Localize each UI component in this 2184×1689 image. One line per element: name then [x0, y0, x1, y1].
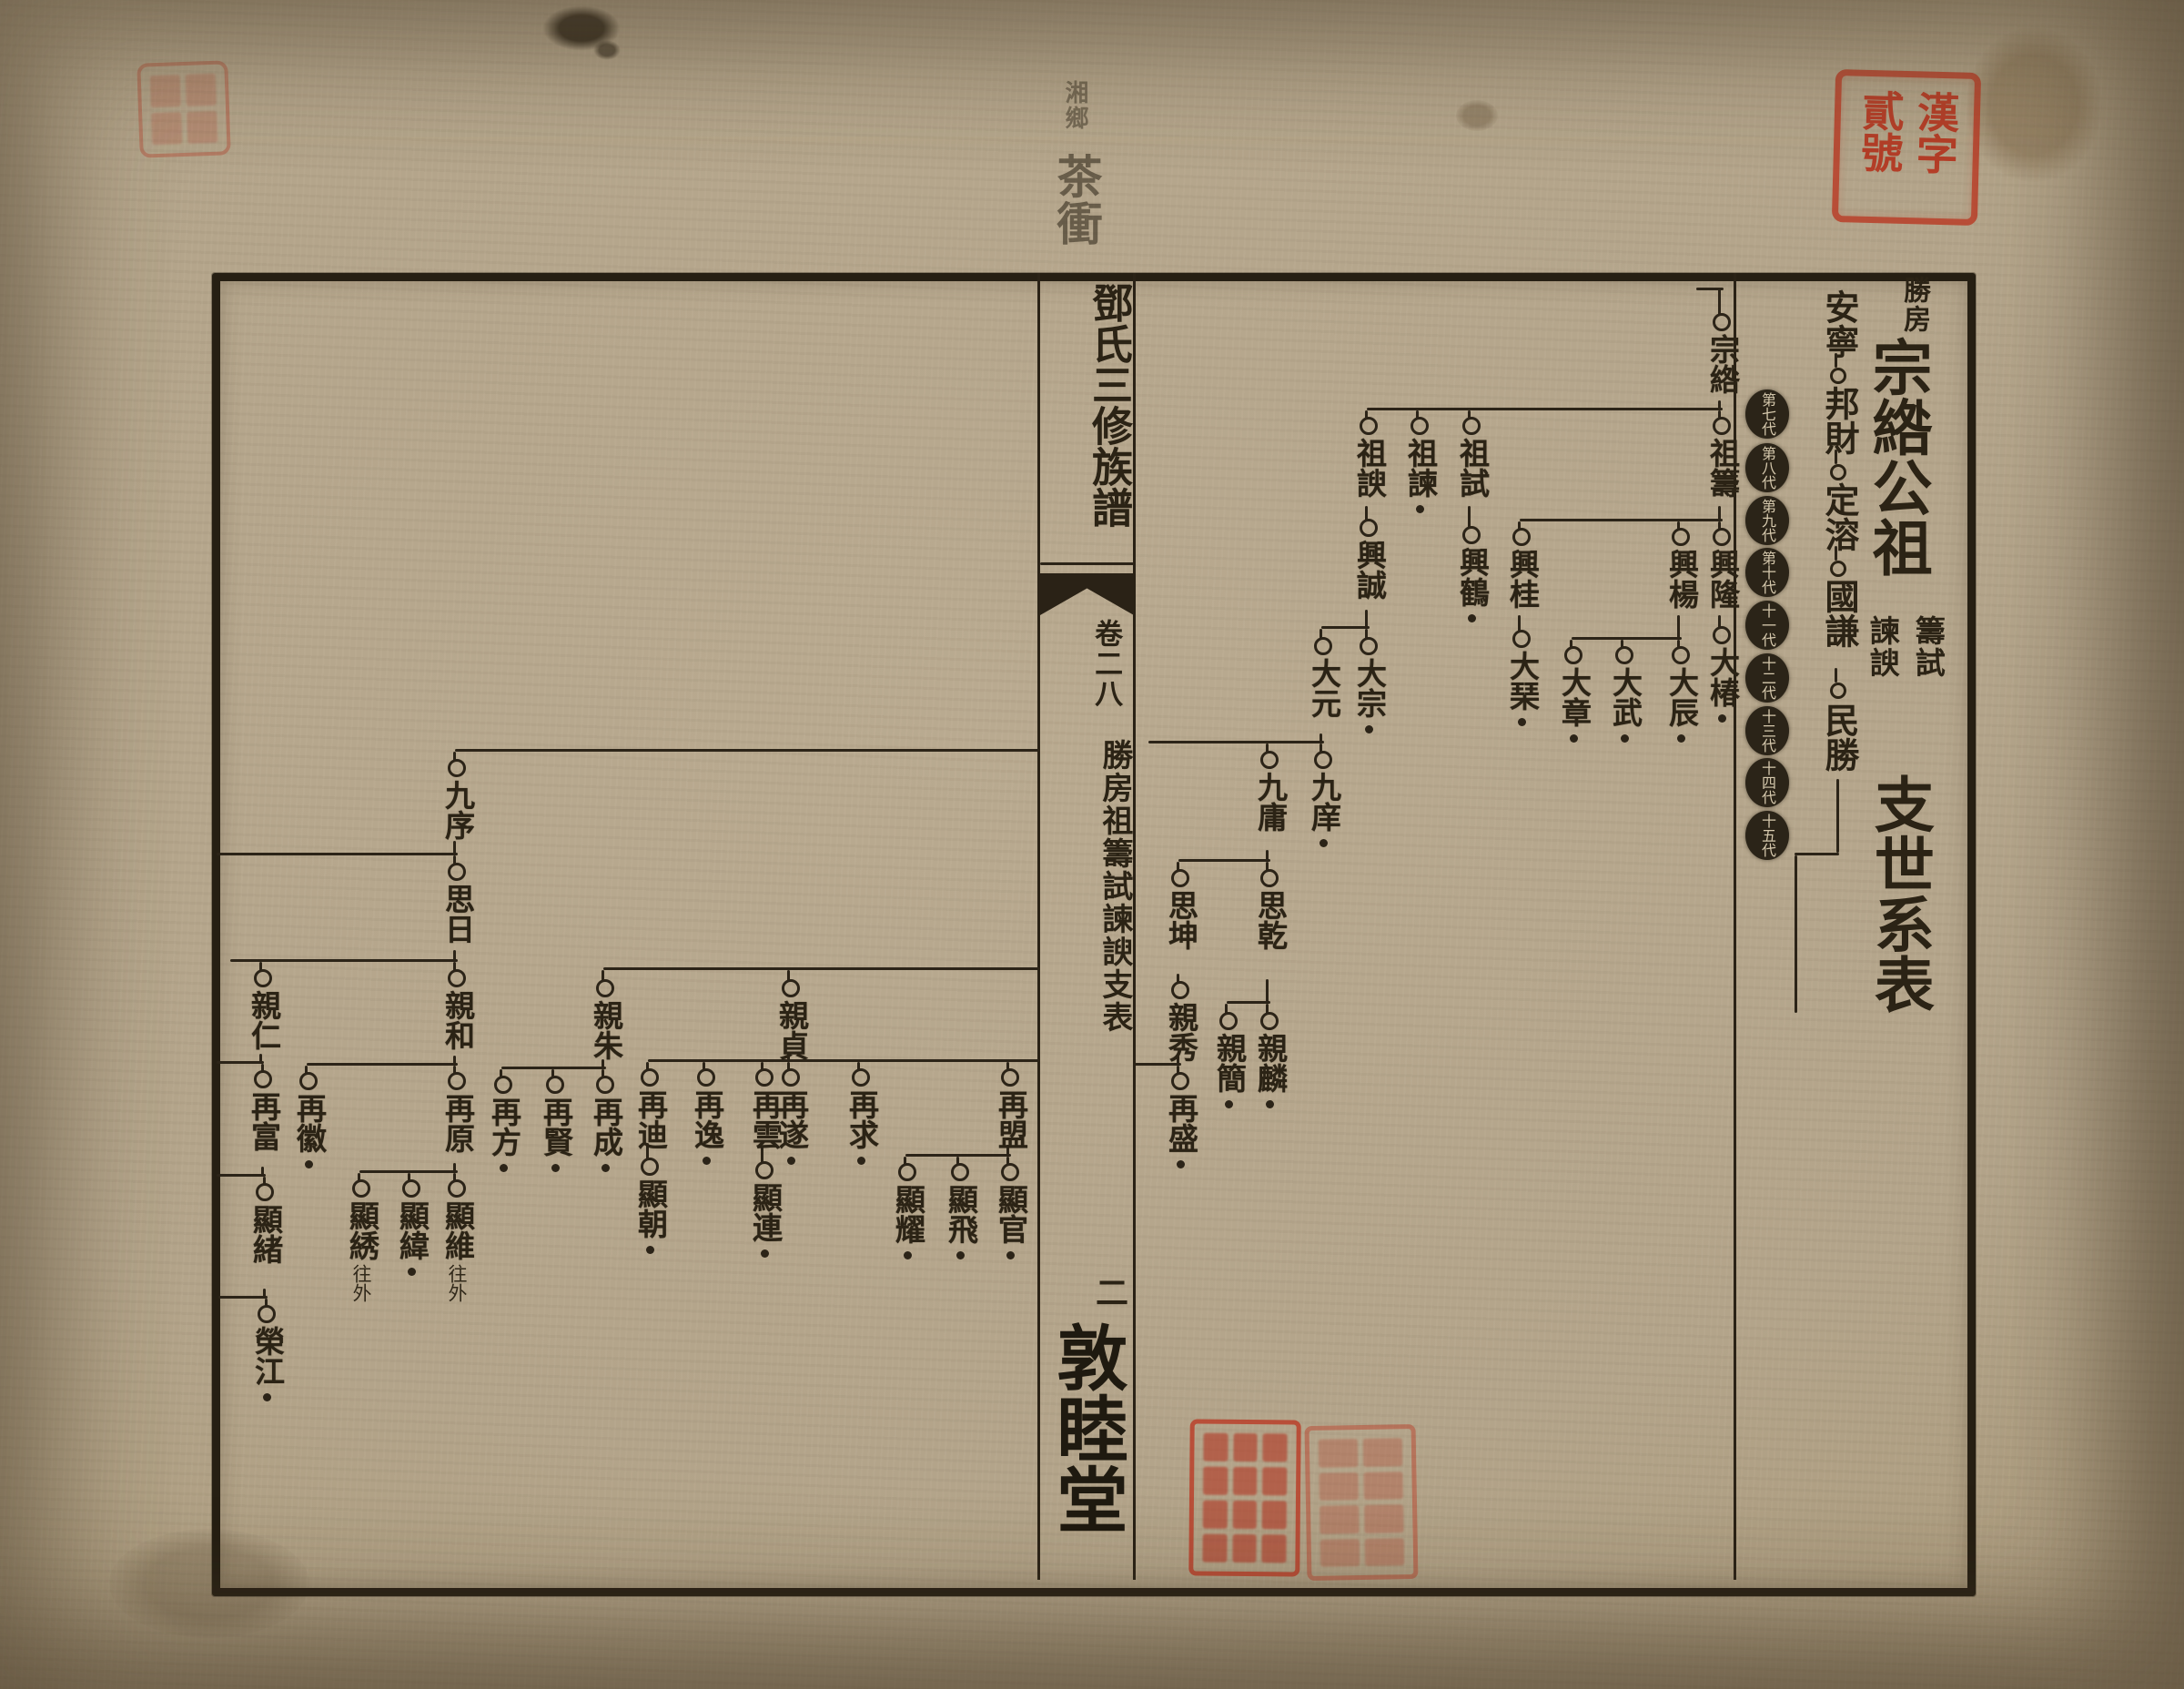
person-circle-icon [448, 759, 466, 777]
fold-place-small: 湘鄉 [1063, 80, 1087, 131]
person-circle-icon [1314, 637, 1332, 655]
line-end-dot [500, 1164, 508, 1172]
tree-connector-line [1677, 615, 1680, 639]
person-name: 再逸 [690, 1089, 723, 1149]
line-end-dot [956, 1251, 965, 1259]
tree-connector-line [1367, 408, 1723, 410]
tree-connector-line [1795, 853, 1839, 855]
generation-badge-label: 第八代 [1760, 446, 1774, 490]
tree-connector-line [217, 1174, 266, 1177]
branch-label: 勝房 [1900, 276, 1927, 334]
person-circle-icon [448, 969, 466, 987]
tree-node-九庠: 九庠 [1303, 751, 1343, 847]
person-circle-icon [254, 1070, 272, 1088]
tree-node-再富: 再富 [243, 1070, 283, 1151]
person-name: 大元 [1307, 658, 1340, 718]
page-title-rest: 支世系表 [1864, 774, 1935, 1014]
tree-node-親貞: 親貞 [771, 979, 811, 1060]
line-end-dot [1468, 614, 1476, 622]
fold-book-title: 鄧氏三修族譜 [1050, 282, 1128, 528]
tree-node-親仁: 親仁 [243, 969, 283, 1050]
line-end-dot [1621, 734, 1629, 743]
tree-connector-line [1795, 855, 1797, 1013]
person-name: 大章 [1557, 667, 1591, 727]
fold-volume-number: 卷二八 [1090, 619, 1121, 709]
chain-circle [1830, 683, 1846, 699]
tree-node-顯綉: 顯綉往外 [341, 1179, 381, 1302]
line-end-dot [263, 1393, 271, 1401]
person-name: 大辰 [1664, 667, 1698, 727]
person-circle-icon [898, 1163, 916, 1181]
tree-node-親秀: 親秀 [1160, 981, 1200, 1062]
person-name: 祖諛 [1352, 438, 1386, 498]
fold-section-title: 勝房祖籌試諫諛支表 [1094, 739, 1135, 1034]
tree-connector-line [648, 1059, 1040, 1062]
tree-node-顯連: 顯連 [744, 1161, 784, 1258]
person-name: 顯緯 [395, 1200, 429, 1260]
tree-connector-line [455, 749, 1040, 752]
person-name: 興誠 [1352, 540, 1386, 600]
tree-node-顯飛: 顯飛 [940, 1163, 980, 1259]
tree-node-顯耀: 顯耀 [887, 1163, 927, 1259]
tree-node-大章: 大章 [1553, 646, 1593, 743]
person-circle-icon [1360, 519, 1378, 537]
tree-node-再成: 再成 [585, 1076, 625, 1172]
fold-page-number: 二 [1096, 1267, 1128, 1314]
tree-node-親麟: 親麟 [1249, 1012, 1289, 1108]
line-end-dot [551, 1164, 560, 1172]
person-circle-icon [1713, 313, 1731, 331]
person-circle-icon [755, 1161, 773, 1179]
ancestor-name: 邦財 [1818, 386, 1858, 455]
ancestor-name: 定溶 [1818, 482, 1858, 551]
line-end-dot [1177, 1160, 1185, 1168]
person-circle-icon [1672, 528, 1690, 546]
person-name: 九庸 [1253, 772, 1287, 832]
tree-node-親和: 親和 [437, 969, 477, 1050]
person-name: 大琹 [1505, 651, 1539, 711]
tree-connector-line [217, 1061, 264, 1064]
person-circle-icon [299, 1072, 318, 1090]
person-name: 興楊 [1664, 549, 1698, 609]
generation-badge: 第十代 [1745, 548, 1789, 597]
tree-connector-line [217, 853, 458, 855]
generation-badge: 十二代 [1745, 653, 1789, 703]
tree-connector-line [603, 967, 1040, 970]
chain-connector [1835, 450, 1837, 464]
line-end-dot [1266, 1100, 1274, 1108]
tree-node-再盟: 再盟 [990, 1068, 1030, 1149]
person-circle-icon [1512, 528, 1531, 546]
tree-connector-line [1135, 1063, 1181, 1066]
line-end-dot [408, 1268, 416, 1276]
person-name: 顯維 [440, 1200, 474, 1260]
line-end-dot [1225, 1100, 1233, 1108]
tree-connector-line [261, 1167, 264, 1176]
tree-connector-line [1266, 850, 1269, 861]
person-circle-icon [1713, 417, 1731, 435]
person-circle-icon [1713, 528, 1731, 546]
tree-connector-line [259, 1054, 262, 1063]
person-name: 再盟 [994, 1089, 1027, 1149]
chain-connector [1835, 668, 1837, 683]
tree-node-宗綹: 宗綹 [1702, 313, 1742, 394]
title-annotation-right: 籌試 [1911, 615, 1944, 679]
seal-text-right-column: 漢字 [1907, 90, 1962, 175]
person-name: 親貞 [774, 1000, 808, 1060]
generation-badge-label: 第九代 [1760, 499, 1774, 542]
person-name: 祖籌 [1705, 438, 1739, 498]
person-name: 顯官 [994, 1184, 1027, 1244]
tree-connector-line [263, 1289, 266, 1298]
person-name: 思乾 [1253, 890, 1287, 950]
line-end-dot [1518, 718, 1526, 726]
fishtail-rule [1040, 562, 1134, 565]
tree-connector-line [1178, 859, 1270, 862]
person-circle-icon [697, 1068, 715, 1087]
person-name: 思坤 [1164, 890, 1198, 950]
person-circle-icon [402, 1179, 420, 1198]
person-circle-icon [782, 1068, 800, 1087]
generation-badge: 十一代 [1745, 601, 1789, 650]
tree-node-大椿: 大椿 [1702, 626, 1742, 723]
generation-badge: 十四代 [1745, 758, 1789, 807]
person-circle-icon [1260, 751, 1279, 769]
person-circle-icon [1219, 1012, 1238, 1030]
person-circle-icon [1001, 1068, 1019, 1087]
chain-circle [1830, 464, 1846, 480]
tree-node-顯緯: 顯緯 [391, 1179, 431, 1276]
tree-connector-line [1836, 779, 1839, 853]
line-end-dot [602, 1164, 610, 1172]
person-circle-icon [1260, 1012, 1279, 1030]
chain-connector [1835, 353, 1837, 368]
person-name: 親和 [440, 990, 474, 1050]
tree-connector-line [230, 959, 458, 962]
person-circle-icon [1314, 751, 1332, 769]
chain-circle [1830, 368, 1846, 384]
person-circle-icon [1462, 526, 1481, 544]
person-circle-icon [448, 1072, 466, 1090]
tree-node-祖籌: 祖籌 [1702, 417, 1742, 498]
tree-connector-line [1718, 400, 1721, 410]
line-end-dot [1570, 734, 1578, 743]
person-name: 興鶴 [1455, 547, 1489, 607]
tree-node-興桂: 興桂 [1501, 528, 1542, 609]
line-end-dot [1416, 505, 1424, 513]
person-circle-icon [1564, 646, 1582, 664]
line-end-dot [1718, 714, 1726, 723]
tree-connector-line [453, 950, 456, 961]
person-name: 親朱 [589, 1000, 622, 1060]
person-name: 再方 [487, 1097, 521, 1157]
red-seal-top-right: 漢字 貳號 [1832, 69, 1981, 226]
tree-node-大元: 大元 [1303, 637, 1343, 718]
person-name: 再迪 [633, 1089, 667, 1149]
tree-connector-line [1718, 289, 1721, 315]
title-annotation-left: 諫諛 [1865, 615, 1898, 679]
tree-node-祖諫: 祖諫 [1400, 417, 1440, 513]
person-name: 顯朝 [633, 1178, 667, 1239]
person-name: 大宗 [1352, 658, 1386, 718]
person-circle-icon [1672, 646, 1690, 664]
generation-badge: 第七代 [1745, 389, 1789, 439]
person-circle-icon [448, 1179, 466, 1198]
tree-connector-line [1266, 979, 1269, 1003]
tree-connector-line [1148, 741, 1324, 743]
person-name: 顯耀 [891, 1184, 925, 1244]
person-name: 顯綉 [345, 1200, 379, 1260]
person-name: 親仁 [247, 990, 280, 1050]
person-name: 興隆 [1705, 549, 1739, 609]
generation-badge-label: 十二代 [1760, 656, 1774, 700]
tree-connector-line [218, 1296, 268, 1299]
red-seal-bottom-left [1188, 1419, 1300, 1576]
generation-badge: 第九代 [1745, 496, 1789, 545]
person-name: 再賢 [539, 1097, 572, 1157]
person-circle-icon [1360, 637, 1378, 655]
line-end-dot [1677, 734, 1685, 743]
line-end-dot [904, 1251, 912, 1259]
person-circle-icon [596, 1076, 614, 1094]
person-circle-icon [1410, 417, 1429, 435]
tree-connector-line [1520, 519, 1723, 521]
tree-node-大宗: 大宗 [1349, 637, 1389, 733]
chain-connector [1835, 546, 1837, 561]
tree-node-祖試: 祖試 [1451, 417, 1491, 498]
fold-column-left-border [1037, 273, 1040, 1580]
person-name: 九庠 [1307, 772, 1340, 832]
tree-node-再盛: 再盛 [1160, 1072, 1200, 1168]
line-end-dot [787, 1157, 795, 1165]
person-circle-icon [596, 979, 614, 997]
tree-node-九庸: 九庸 [1249, 751, 1289, 832]
tree-node-親簡: 親簡 [1208, 1012, 1249, 1108]
person-circle-icon [256, 1183, 274, 1201]
generation-badge-label: 十四代 [1760, 761, 1774, 804]
tree-node-興鶴: 興鶴 [1451, 526, 1491, 622]
fold-hall-name: 敦睦堂 [1048, 1321, 1124, 1534]
tree-node-再逸: 再逸 [686, 1068, 726, 1165]
tree-node-顯官: 顯官 [990, 1163, 1030, 1259]
tree-node-再方: 再方 [483, 1076, 523, 1172]
tree-connector-line [1572, 637, 1682, 640]
ancestor-name: 民勝 [1818, 703, 1858, 772]
line-end-dot [857, 1157, 865, 1165]
tree-connector-line [1718, 506, 1721, 521]
person-circle-icon [1171, 981, 1189, 999]
generation-badge-label: 第十代 [1760, 551, 1774, 594]
tree-node-祖諛: 祖諛 [1349, 417, 1389, 498]
generation-badge-label: 十五代 [1760, 814, 1774, 857]
tree-node-興隆: 興隆 [1702, 528, 1742, 609]
seal-text-left-column: 貳號 [1852, 88, 1906, 173]
person-name: 再原 [440, 1093, 474, 1153]
person-name: 再成 [589, 1097, 622, 1157]
line-end-dot [703, 1157, 711, 1165]
tree-node-興誠: 興誠 [1349, 519, 1389, 600]
person-circle-icon [641, 1158, 659, 1176]
person-circle-icon [641, 1068, 659, 1087]
tree-node-再徽: 再徽 [288, 1072, 329, 1168]
generation-badge-label: 十三代 [1760, 709, 1774, 753]
person-name: 宗綹 [1705, 334, 1739, 394]
person-circle-icon [494, 1076, 512, 1094]
tree-node-大武: 大武 [1604, 646, 1644, 743]
tree-connector-line [1321, 626, 1370, 629]
tree-node-大琹: 大琹 [1501, 630, 1542, 726]
red-seal-bottom-right [1305, 1424, 1419, 1581]
person-name: 興桂 [1505, 549, 1539, 609]
tree-node-思坤: 思坤 [1160, 869, 1200, 950]
person-name: 親簡 [1212, 1033, 1246, 1093]
tree-node-興楊: 興楊 [1661, 528, 1701, 609]
person-circle-icon [1001, 1163, 1019, 1181]
person-name: 再徽 [292, 1093, 326, 1153]
person-circle-icon [1260, 869, 1279, 887]
person-circle-icon [1171, 869, 1189, 887]
tree-node-親朱: 親朱 [585, 979, 625, 1060]
line-end-dot [1006, 1251, 1015, 1259]
generation-badge: 十五代 [1745, 811, 1789, 860]
person-name: 顯飛 [944, 1184, 977, 1244]
tree-node-再迪: 再迪 [630, 1068, 670, 1149]
tree-node-顯維: 顯維往外 [437, 1179, 477, 1302]
person-name: 再富 [247, 1091, 280, 1151]
person-name: 榮江 [250, 1326, 284, 1386]
tree-connector-line [1468, 506, 1471, 528]
line-end-dot [1319, 839, 1328, 847]
person-name: 大椿 [1705, 647, 1739, 707]
person-name: 親麟 [1253, 1033, 1287, 1093]
tree-connector-line [1227, 1001, 1270, 1004]
ancestor-name: 國謙 [1818, 579, 1858, 648]
person-note: 往外 [447, 1264, 467, 1302]
person-circle-icon [258, 1305, 276, 1323]
generation-badge-label: 十一代 [1760, 603, 1774, 647]
person-circle-icon [1462, 417, 1481, 435]
person-circle-icon [1171, 1072, 1189, 1090]
ancestor-name: 安寧 [1818, 289, 1858, 359]
person-note: 往外 [351, 1264, 371, 1302]
person-name: 親秀 [1164, 1002, 1198, 1062]
page-title: 宗綹公祖 [1864, 337, 1932, 577]
person-circle-icon [254, 969, 272, 987]
chain-circle [1830, 561, 1846, 577]
person-name: 顯緒 [248, 1204, 282, 1264]
tree-node-顯緒: 顯緒 [245, 1183, 285, 1264]
person-name: 祖試 [1455, 438, 1489, 498]
tree-node-大辰: 大辰 [1661, 646, 1701, 743]
person-name: 思日 [440, 884, 474, 944]
person-name: 再雲 [748, 1089, 782, 1149]
tree-node-再原: 再原 [437, 1072, 477, 1153]
person-circle-icon [1615, 646, 1633, 664]
line-end-dot [305, 1160, 313, 1168]
tree-connector-line [602, 1059, 604, 1068]
generation-badge-label: 第七代 [1760, 392, 1774, 436]
generation-badge: 第八代 [1745, 443, 1789, 492]
red-seal-top-left-faded [136, 60, 231, 157]
person-circle-icon [448, 863, 466, 881]
person-circle-icon [1512, 630, 1531, 648]
tree-connector-line [453, 841, 456, 855]
line-end-dot [646, 1246, 654, 1254]
person-circle-icon [352, 1179, 370, 1198]
tree-node-再賢: 再賢 [535, 1076, 575, 1172]
person-name: 再求 [844, 1089, 878, 1149]
tree-connector-line [307, 1063, 458, 1066]
line-end-dot [761, 1249, 769, 1258]
fold-place: 茶衝 [1052, 153, 1100, 248]
tree-connector-line [453, 1056, 456, 1065]
person-circle-icon [782, 979, 800, 997]
tree-node-榮江: 榮江 [247, 1305, 287, 1401]
person-circle-icon [546, 1076, 564, 1094]
tree-node-顯朝: 顯朝 [630, 1158, 670, 1254]
person-name: 大武 [1608, 667, 1642, 727]
line-end-dot [1365, 725, 1373, 733]
person-circle-icon [852, 1068, 870, 1087]
tree-node-再雲: 再雲 [744, 1068, 784, 1149]
person-circle-icon [1713, 626, 1731, 644]
person-name: 顯連 [748, 1182, 782, 1242]
person-circle-icon [951, 1163, 969, 1181]
tree-connector-line [453, 1163, 456, 1172]
tree-connector-line [1319, 733, 1322, 743]
tree-node-思乾: 思乾 [1249, 869, 1289, 950]
tree-node-再求: 再求 [841, 1068, 881, 1165]
person-circle-icon [1360, 417, 1378, 435]
generation-badge: 十三代 [1745, 706, 1789, 755]
person-name: 再盛 [1164, 1093, 1198, 1153]
person-name: 祖諫 [1403, 438, 1437, 498]
tree-node-九序: 九序 [437, 759, 477, 840]
tree-node-思日: 思日 [437, 863, 477, 944]
tree-connector-line [1365, 610, 1368, 628]
person-name: 九序 [440, 780, 474, 840]
person-circle-icon [755, 1068, 773, 1087]
